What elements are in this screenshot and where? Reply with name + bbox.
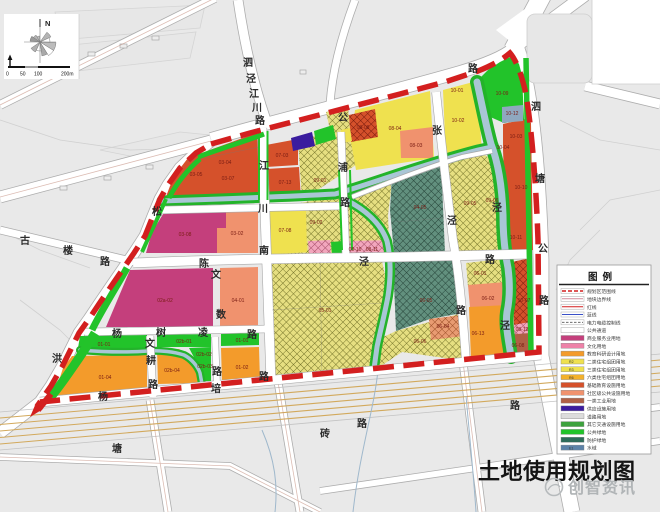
svg-text:路: 路	[468, 62, 479, 75]
svg-text:09-05: 09-05	[464, 201, 477, 207]
svg-text:图例: 图例	[588, 271, 617, 283]
svg-text:教育科研设计用地: 教育科研设计用地	[587, 351, 626, 358]
svg-text:10-10: 10-10	[515, 185, 528, 191]
svg-text:公: 公	[538, 243, 548, 255]
svg-text:一类工业用地: 一类工业用地	[587, 398, 616, 405]
svg-text:树: 树	[156, 326, 166, 339]
svg-text:文: 文	[145, 337, 156, 350]
svg-text:泾: 泾	[447, 214, 457, 227]
svg-text:路: 路	[485, 253, 496, 266]
svg-text:二类住宅组团用地: 二类住宅组团用地	[587, 359, 626, 366]
svg-text:07-13: 07-13	[279, 180, 292, 186]
svg-text:05-01: 05-01	[319, 308, 332, 314]
svg-text:文: 文	[211, 268, 222, 281]
svg-text:10-12: 10-12	[506, 111, 519, 117]
svg-text:03-04: 03-04	[219, 160, 232, 166]
svg-text:04-05: 04-05	[414, 205, 427, 211]
svg-text:10-11: 10-11	[510, 235, 523, 241]
svg-text:09-01: 09-01	[314, 178, 327, 184]
svg-text:08-03: 08-03	[410, 143, 423, 149]
svg-text:03-05: 03-05	[190, 172, 203, 178]
svg-text:泾: 泾	[359, 255, 369, 268]
svg-text:江: 江	[249, 87, 259, 100]
svg-text:供应设施用地: 供应设施用地	[587, 406, 616, 413]
svg-text:06-02: 06-02	[482, 296, 495, 302]
svg-text:02b-01: 02b-01	[176, 339, 192, 345]
svg-text:01-02: 01-02	[236, 365, 249, 371]
svg-text:06-01: 06-01	[474, 271, 487, 277]
svg-text:08-04: 08-04	[389, 126, 402, 132]
svg-text:电力电缆控制线: 电力电缆控制线	[587, 319, 621, 326]
svg-text:塘: 塘	[112, 442, 122, 455]
svg-text:路: 路	[255, 114, 266, 127]
svg-text:路: 路	[148, 378, 159, 391]
svg-text:川: 川	[257, 203, 268, 215]
svg-text:文化用地: 文化用地	[587, 343, 606, 350]
svg-text:泗: 泗	[243, 56, 253, 69]
svg-text:商业服务业用地: 商业服务业用地	[587, 335, 621, 342]
svg-text:路: 路	[510, 399, 521, 412]
svg-text:古: 古	[20, 234, 30, 247]
svg-text:N: N	[45, 19, 50, 28]
svg-text:10-01: 10-01	[451, 88, 464, 94]
svg-text:200m: 200m	[61, 72, 74, 78]
svg-text:09-06: 09-06	[486, 198, 499, 204]
svg-text:松: 松	[152, 205, 162, 218]
svg-text:08-10: 08-10	[349, 247, 362, 253]
svg-text:04-01: 04-01	[232, 298, 245, 304]
svg-text:三类住宅组团用地: 三类住宅组团用地	[587, 366, 626, 373]
svg-text:洪: 洪	[52, 352, 62, 365]
svg-text:泾: 泾	[246, 72, 256, 85]
svg-text:公共绿地: 公共绿地	[587, 429, 606, 436]
svg-text:01-01: 01-01	[98, 342, 111, 348]
svg-text:08-11: 08-11	[366, 247, 379, 253]
svg-text:09-02: 09-02	[310, 220, 323, 226]
svg-text:江: 江	[259, 159, 269, 172]
svg-text:路: 路	[340, 196, 351, 209]
svg-text:02b-02: 02b-02	[196, 352, 212, 358]
svg-text:公: 公	[338, 112, 348, 124]
svg-text:基础教育设施用地: 基础教育设施用地	[587, 382, 626, 389]
svg-text:10-09: 10-09	[496, 91, 509, 97]
svg-text:02b-03: 02b-03	[197, 364, 213, 370]
svg-text:10-04: 10-04	[497, 145, 510, 151]
svg-text:路: 路	[212, 365, 223, 378]
svg-text:砖: 砖	[320, 427, 330, 440]
svg-text:其它交通设施用地: 其它交通设施用地	[587, 421, 626, 428]
svg-text:凌: 凌	[198, 326, 209, 339]
svg-text:浦: 浦	[338, 161, 348, 174]
svg-text:03-07: 03-07	[222, 176, 235, 182]
svg-text:耕: 耕	[146, 354, 156, 367]
svg-text:10-03: 10-03	[510, 134, 523, 140]
svg-text:创智资讯: 创智资讯	[567, 478, 636, 497]
svg-text:路: 路	[357, 417, 368, 430]
svg-text:路: 路	[100, 255, 111, 268]
svg-text:06-06: 06-06	[414, 339, 427, 345]
svg-text:楼: 楼	[63, 244, 73, 257]
svg-text:杨: 杨	[98, 390, 108, 403]
svg-text:10-07: 10-07	[518, 298, 531, 304]
svg-text:规划区范围线: 规划区范围线	[587, 288, 616, 295]
svg-text:R3: R3	[569, 368, 574, 372]
svg-text:02b-04: 02b-04	[164, 368, 180, 374]
svg-text:07-03: 07-03	[276, 153, 289, 159]
svg-text:50: 50	[20, 72, 26, 78]
svg-text:07-08: 07-08	[279, 228, 292, 234]
svg-text:六类住宅组团用地: 六类住宅组团用地	[587, 374, 626, 381]
svg-text:01-01: 01-01	[236, 338, 249, 344]
svg-text:数: 数	[216, 308, 227, 321]
svg-text:0: 0	[6, 72, 9, 78]
svg-text:02a-02: 02a-02	[157, 298, 173, 304]
svg-text:06-13: 06-13	[472, 331, 485, 337]
svg-text:道路用地: 道路用地	[587, 413, 606, 420]
svg-text:R2: R2	[569, 360, 574, 364]
svg-text:06-04: 06-04	[437, 324, 450, 330]
svg-text:10-02: 10-02	[452, 118, 465, 124]
svg-text:100: 100	[34, 72, 43, 78]
svg-text:川: 川	[251, 102, 262, 114]
svg-text:培: 培	[211, 382, 221, 395]
svg-text:水域: 水域	[587, 445, 597, 452]
svg-text:杨: 杨	[112, 327, 122, 340]
svg-text:06-05: 06-05	[420, 298, 433, 304]
svg-text:防护绿地: 防护绿地	[587, 437, 606, 444]
svg-text:公共通道: 公共通道	[587, 327, 606, 334]
svg-text:08-08: 08-08	[357, 125, 370, 131]
svg-text:泗: 泗	[531, 100, 541, 113]
svg-text:陈: 陈	[199, 257, 209, 270]
svg-text:06-08: 06-08	[512, 343, 525, 349]
svg-text:蓝线: 蓝线	[587, 312, 597, 319]
svg-text:张: 张	[432, 124, 443, 137]
svg-text:E1: E1	[569, 446, 573, 450]
svg-text:泾: 泾	[500, 319, 510, 332]
svg-text:南: 南	[259, 244, 269, 257]
svg-text:塘: 塘	[535, 172, 545, 185]
svg-text:03-08: 03-08	[179, 232, 192, 238]
svg-text:路: 路	[456, 304, 467, 317]
svg-text:03-02: 03-02	[231, 231, 244, 237]
svg-text:路: 路	[247, 328, 258, 341]
svg-text:红线: 红线	[587, 304, 597, 311]
svg-text:08-12: 08-12	[516, 327, 529, 333]
svg-text:地块边界线: 地块边界线	[587, 296, 611, 303]
svg-text:R6: R6	[569, 376, 574, 380]
svg-text:01-04: 01-04	[99, 375, 112, 381]
svg-text:路: 路	[259, 370, 270, 383]
svg-text:路: 路	[539, 294, 550, 307]
svg-text:社区级公共设施用地: 社区级公共设施用地	[587, 390, 630, 397]
